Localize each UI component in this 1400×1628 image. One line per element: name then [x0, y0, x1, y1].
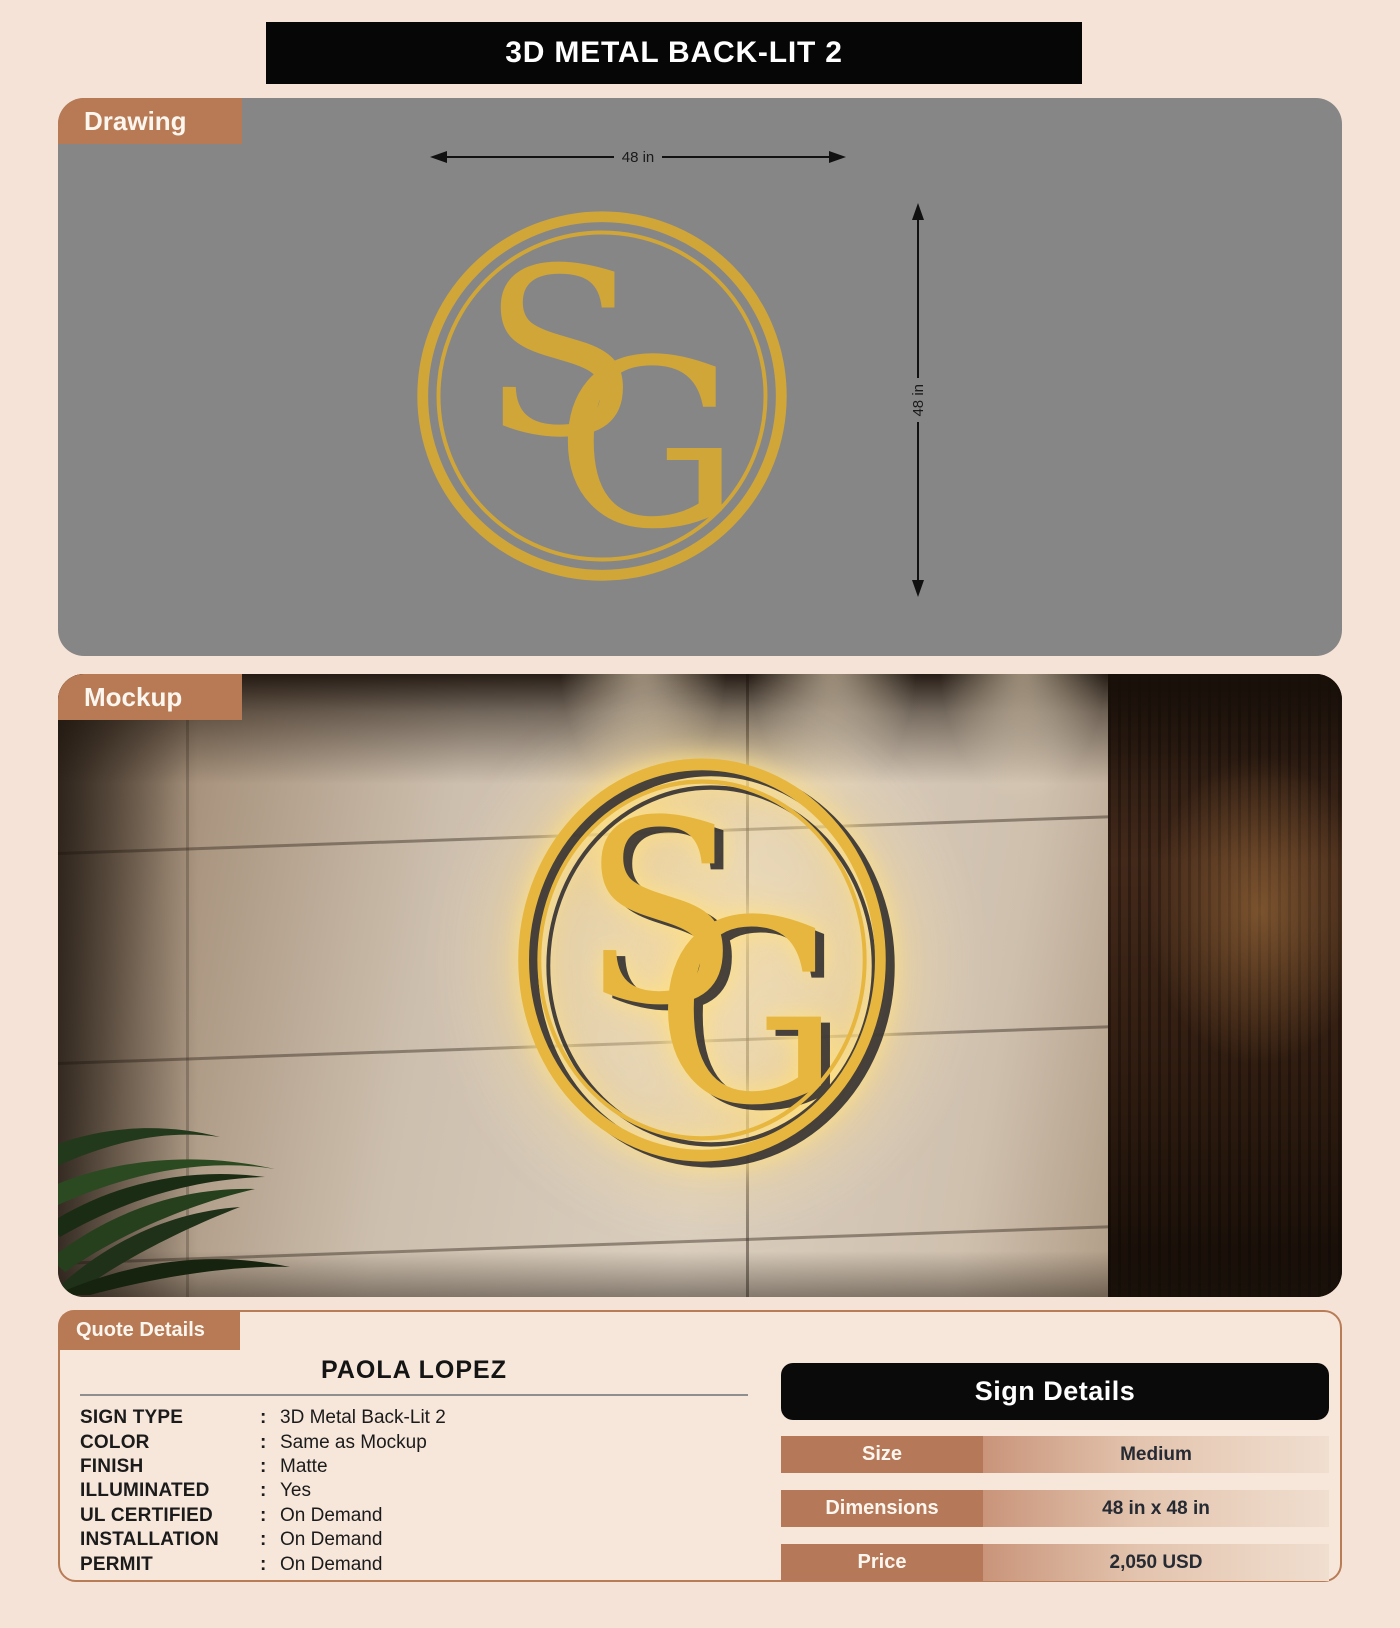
- width-dimension-label: 48 in: [622, 149, 655, 166]
- quote-row-ul-certified: UL CERTIFIED:On Demand: [80, 1504, 770, 1528]
- drawing-section-tag: Drawing: [58, 98, 242, 144]
- row-label: PERMIT: [80, 1554, 260, 1576]
- sign-details-row-size: Size Medium: [781, 1436, 1329, 1473]
- quote-rows: SIGN TYPE:3D Metal Back-Lit 2 COLOR:Same…: [80, 1406, 770, 1577]
- sg-monogram-logo: S G: [405, 199, 799, 593]
- drawing-panel: 48 in 48 in S G: [58, 98, 1342, 656]
- dimension-line: [662, 156, 829, 158]
- arrow-down-icon: [912, 580, 924, 597]
- sg-monogram-logo-mockup: S G: [506, 745, 898, 1175]
- row-separator: :: [260, 1432, 274, 1454]
- row-value: 3D Metal Back-Lit 2: [274, 1407, 770, 1429]
- row-value: On Demand: [274, 1554, 770, 1576]
- row-label: UL CERTIFIED: [80, 1505, 260, 1527]
- row-separator: :: [260, 1505, 274, 1527]
- plant-decor: [58, 1027, 350, 1297]
- quote-row-color: COLOR:Same as Mockup: [80, 1430, 770, 1454]
- quote-details-tag: Quote Details: [58, 1310, 240, 1350]
- logo-letter-g: G: [655, 868, 839, 1162]
- divider: [80, 1394, 748, 1396]
- page-title: 3D METAL BACK-LIT 2: [266, 22, 1082, 84]
- mockup-section-tag: Mockup: [58, 674, 242, 720]
- row-label: COLOR: [80, 1432, 260, 1454]
- row-separator: :: [260, 1529, 274, 1551]
- row-separator: :: [260, 1456, 274, 1478]
- mockup-photo: S G: [58, 674, 1342, 1297]
- row-label: INSTALLATION: [80, 1529, 260, 1551]
- row-separator: :: [260, 1480, 274, 1502]
- dimension-line: [447, 156, 614, 158]
- row-value: On Demand: [274, 1505, 770, 1527]
- arrow-up-icon: [912, 203, 924, 220]
- quote-row-sign-type: SIGN TYPE:3D Metal Back-Lit 2: [80, 1406, 770, 1430]
- dimension-line: [917, 220, 919, 378]
- cell-label: Price: [781, 1544, 983, 1581]
- logo-letter-g: G: [555, 310, 740, 580]
- quote-row-installation: INSTALLATION:On Demand: [80, 1528, 770, 1552]
- row-separator: :: [260, 1407, 274, 1429]
- row-value: Yes: [274, 1480, 770, 1502]
- cell-value: 48 in x 48 in: [983, 1490, 1329, 1527]
- cell-value: Medium: [983, 1436, 1329, 1473]
- arrow-left-icon: [430, 151, 447, 163]
- customer-name: PAOLA LOPEZ: [80, 1356, 748, 1385]
- sign-details-row-price: Price 2,050 USD: [781, 1544, 1329, 1581]
- width-dimension: 48 in: [430, 148, 846, 166]
- spotlight: [938, 674, 1108, 804]
- row-label: FINISH: [80, 1456, 260, 1478]
- sign-details-header: Sign Details: [781, 1363, 1329, 1420]
- cell-label: Dimensions: [781, 1490, 983, 1527]
- cell-value: 2,050 USD: [983, 1544, 1329, 1581]
- row-label: SIGN TYPE: [80, 1407, 260, 1429]
- quote-row-illuminated: ILLUMINATED:Yes: [80, 1479, 770, 1503]
- row-separator: :: [260, 1554, 274, 1576]
- cell-label: Size: [781, 1436, 983, 1473]
- height-dimension-label: 48 in: [910, 384, 927, 417]
- sign-details-row-dimensions: Dimensions 48 in x 48 in: [781, 1490, 1329, 1527]
- row-value: Matte: [274, 1456, 770, 1478]
- height-dimension: 48 in: [903, 203, 933, 597]
- row-value: On Demand: [274, 1529, 770, 1551]
- quote-row-finish: FINISH:Matte: [80, 1455, 770, 1479]
- row-label: ILLUMINATED: [80, 1480, 260, 1502]
- quote-row-permit: PERMIT:On Demand: [80, 1552, 770, 1576]
- dimension-line: [917, 422, 919, 580]
- arrow-right-icon: [829, 151, 846, 163]
- row-value: Same as Mockup: [274, 1432, 770, 1454]
